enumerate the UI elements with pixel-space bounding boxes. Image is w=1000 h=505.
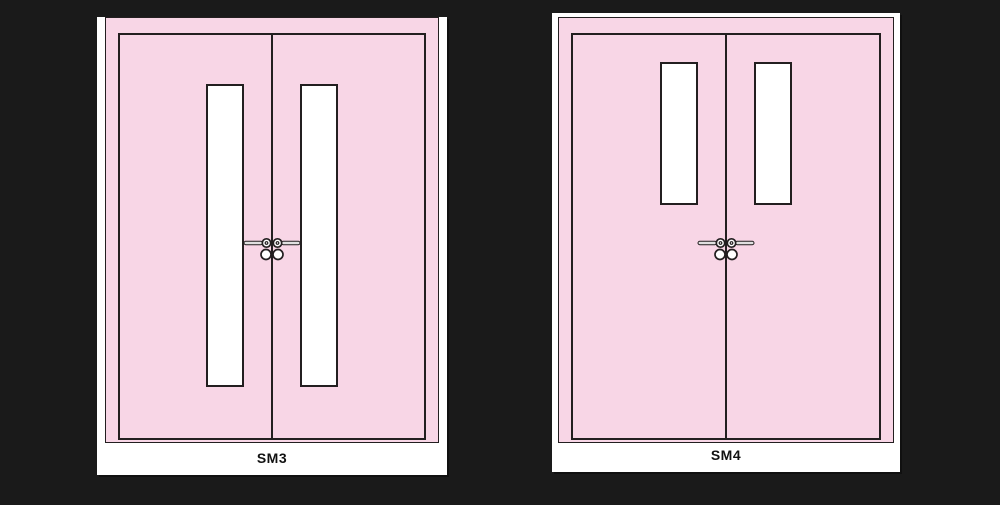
- door-elevation-sm4: SM4: [552, 13, 900, 472]
- door-handle-icon: [694, 233, 758, 265]
- drawing-canvas: SM3 SM4: [0, 0, 1000, 505]
- door-elevation-sm3: SM3: [97, 17, 447, 475]
- vision-panel-glass: [660, 62, 698, 205]
- vision-panel-glass: [300, 84, 338, 387]
- door-label: SM4: [552, 447, 900, 463]
- door-handle-icon: [240, 233, 304, 265]
- door-frame: [558, 17, 894, 443]
- vision-panel-glass: [206, 84, 244, 387]
- door-frame: [105, 17, 439, 443]
- door-label: SM3: [97, 450, 447, 466]
- vision-panel-glass: [754, 62, 792, 205]
